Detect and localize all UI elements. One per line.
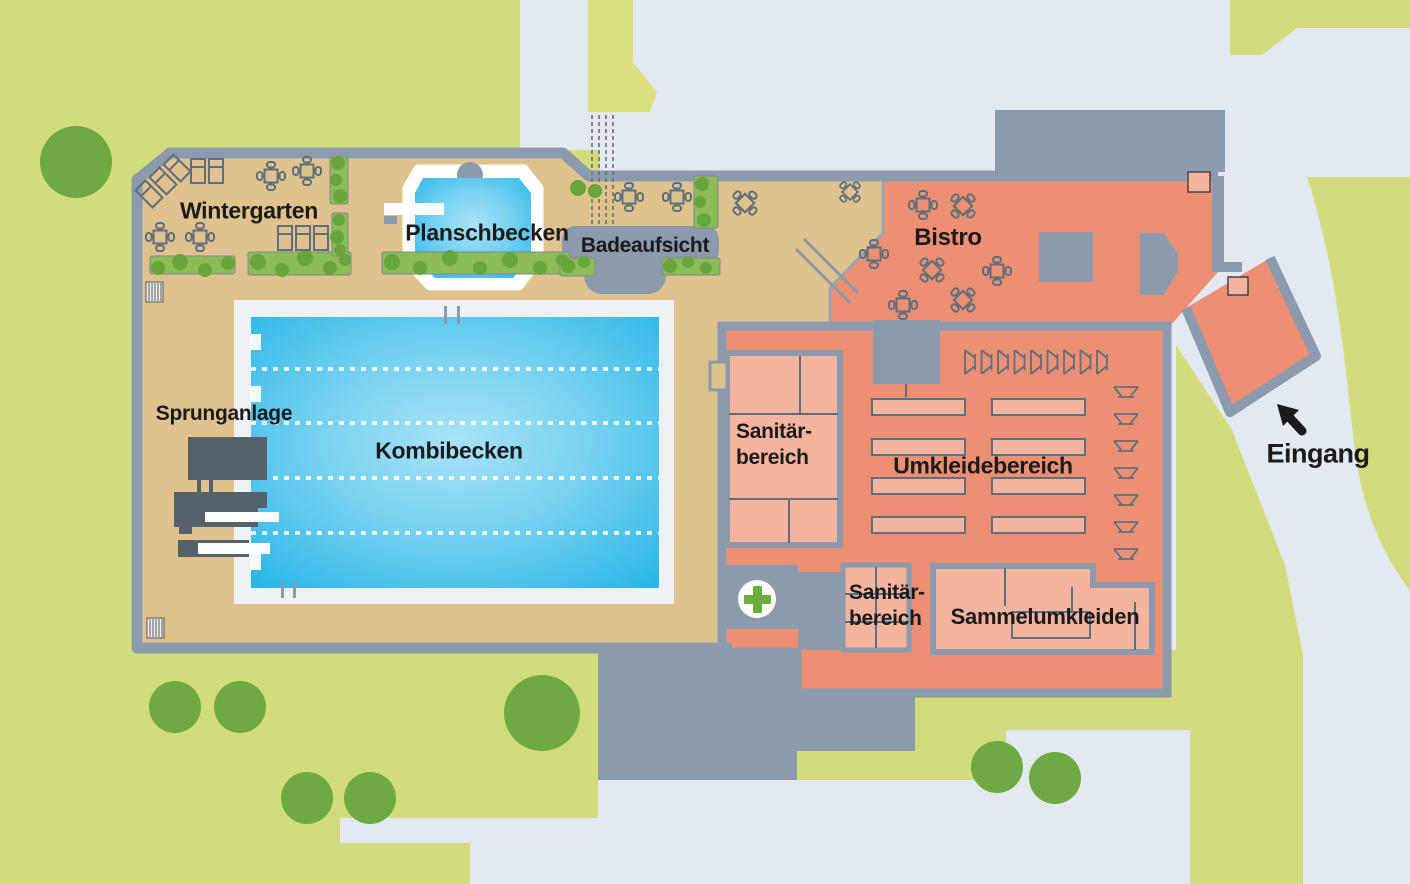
tree bbox=[971, 741, 1023, 793]
building-core bbox=[873, 320, 940, 384]
label-kombibecken: Kombibecken bbox=[375, 438, 523, 465]
walkway-patch bbox=[1006, 730, 1190, 884]
bistro-east-wall bbox=[1212, 176, 1224, 270]
label-badeaufsicht: Badeaufsicht bbox=[581, 234, 709, 258]
tree bbox=[214, 681, 266, 733]
grate-icon bbox=[147, 618, 164, 638]
sanitary-niche bbox=[710, 362, 727, 390]
label-bistro: Bistro bbox=[914, 224, 982, 252]
tree bbox=[504, 675, 580, 751]
label-sanitaerbereich-entry: Sanitär- bereich bbox=[849, 580, 925, 632]
planschbecken-board-base bbox=[384, 216, 397, 224]
label-planschbecken: Planschbecken bbox=[405, 220, 569, 247]
tree bbox=[149, 681, 201, 733]
lawn-bottom-notch bbox=[340, 843, 470, 884]
bistro-counter bbox=[1039, 232, 1093, 282]
bistro-cabinet bbox=[1188, 172, 1210, 192]
label-sanitaerbereich-pool: Sanitär- bereich bbox=[736, 419, 812, 471]
tree bbox=[281, 772, 333, 824]
label-sprunganlage: Sprunganlage bbox=[156, 402, 292, 426]
tree bbox=[1029, 752, 1081, 804]
terrace-south bbox=[598, 645, 797, 780]
first-aid-annex bbox=[798, 572, 844, 650]
tree bbox=[40, 126, 112, 198]
bistro-east-wall-step bbox=[1212, 262, 1242, 272]
label-eingang: Eingang bbox=[1267, 439, 1370, 470]
label-sammelumkleiden: Sammelumkleiden bbox=[951, 604, 1140, 630]
grate-icon bbox=[146, 282, 163, 302]
label-line: Sanitär- bbox=[849, 580, 925, 606]
pool-facility-map: Wintergarten Planschbecken Badeaufsicht … bbox=[0, 0, 1410, 884]
label-wintergarten: Wintergarten bbox=[180, 198, 318, 225]
planschbecken-board bbox=[384, 203, 444, 215]
entrance-cabinet bbox=[1228, 277, 1248, 295]
label-line: Sanitär- bbox=[736, 419, 812, 445]
entrance-roof bbox=[995, 110, 1225, 172]
map-canvas bbox=[0, 0, 1410, 884]
label-line: bereich bbox=[849, 606, 925, 632]
label-umkleidebereich: Umkleidebereich bbox=[893, 453, 1073, 480]
tree bbox=[344, 772, 396, 824]
label-line: bereich bbox=[736, 445, 812, 471]
